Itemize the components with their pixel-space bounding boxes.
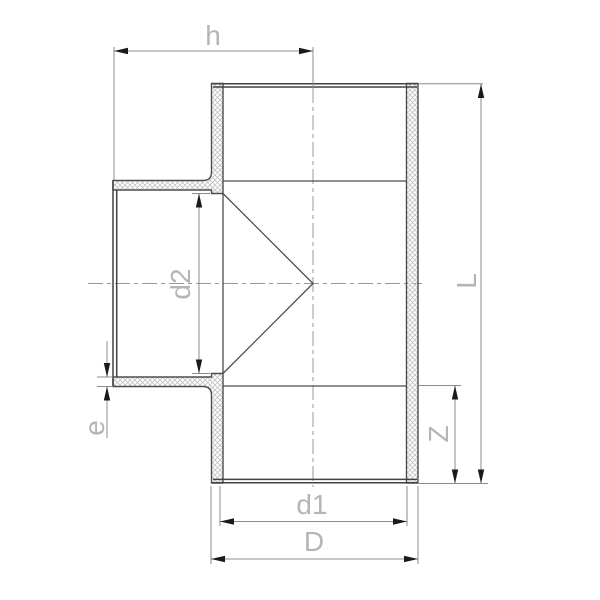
label-d2: d2: [165, 268, 196, 299]
drawing-canvas: h d2 e Z L d1 D: [0, 0, 600, 600]
label-l: L: [451, 273, 482, 289]
label-h: h: [205, 20, 221, 51]
label-d1: d1: [296, 489, 327, 520]
label-D: D: [304, 526, 324, 557]
tee-fitting-dimension-drawing: h d2 e Z L d1 D: [0, 0, 600, 600]
right-wall: [407, 84, 419, 484]
label-z: Z: [423, 425, 454, 442]
label-e: e: [79, 420, 110, 436]
